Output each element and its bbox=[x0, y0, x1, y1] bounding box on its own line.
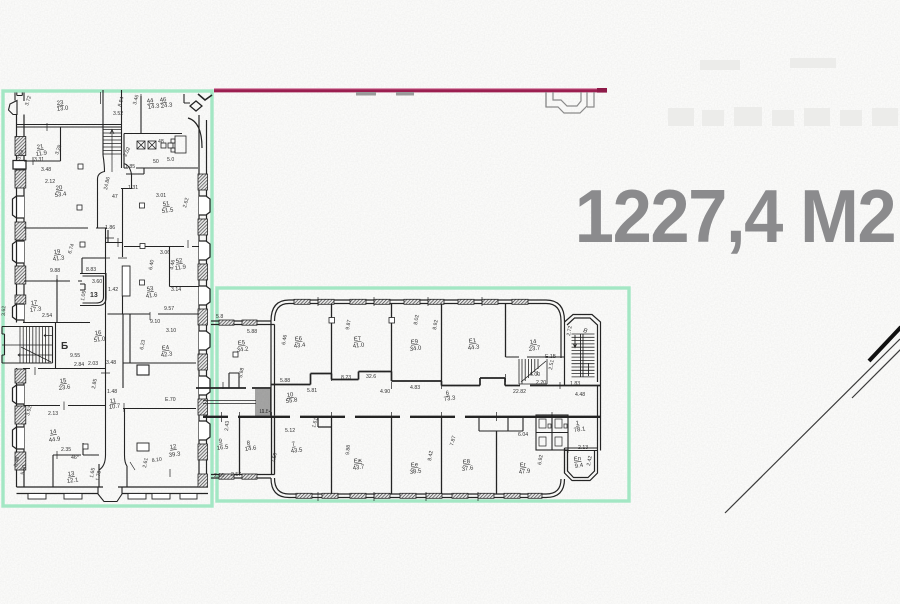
svg-text:6.04: 6.04 bbox=[518, 432, 528, 438]
svg-text:5.0: 5.0 bbox=[167, 157, 174, 163]
svg-text:1.86: 1.86 bbox=[105, 225, 115, 231]
svg-text:Б: Б bbox=[61, 341, 68, 352]
svg-text:46°: 46° bbox=[71, 455, 79, 461]
svg-text:50: 50 bbox=[153, 159, 159, 165]
svg-text:2.13: 2.13 bbox=[48, 411, 58, 417]
svg-text:Е.70: Е.70 bbox=[165, 397, 176, 403]
svg-text:2.16: 2.16 bbox=[214, 473, 224, 479]
svg-text:4.48: 4.48 bbox=[575, 392, 585, 398]
svg-text:5.12: 5.12 bbox=[285, 428, 295, 434]
svg-text:4.83: 4.83 bbox=[410, 385, 420, 391]
svg-text:3.48: 3.48 bbox=[41, 167, 51, 173]
svg-text:2.43: 2.43 bbox=[224, 420, 231, 431]
svg-text:1.42: 1.42 bbox=[108, 287, 118, 293]
svg-text:2.03: 2.03 bbox=[88, 361, 98, 367]
svg-text:2.54: 2.54 bbox=[42, 313, 52, 319]
svg-text:9.55: 9.55 bbox=[70, 353, 80, 359]
svg-text:2.57: 2.57 bbox=[231, 472, 241, 478]
svg-text:48: 48 bbox=[158, 139, 164, 145]
svg-text:8.23: 8.23 bbox=[341, 375, 351, 381]
svg-text:8.83: 8.83 bbox=[86, 267, 96, 273]
svg-text:3.52: 3.52 bbox=[113, 111, 123, 117]
svg-text:9.4: 9.4 bbox=[574, 463, 584, 470]
svg-text:9.57: 9.57 bbox=[164, 306, 174, 312]
svg-text:13: 13 bbox=[90, 292, 98, 299]
svg-text:3.10: 3.10 bbox=[166, 328, 176, 334]
svg-text:4.90: 4.90 bbox=[380, 389, 390, 395]
svg-text:11.84: 11.84 bbox=[259, 409, 272, 415]
svg-text:1.48: 1.48 bbox=[107, 389, 117, 395]
svg-text:1.31: 1.31 bbox=[128, 185, 138, 191]
svg-text:2.84: 2.84 bbox=[74, 362, 84, 368]
svg-text:2.13: 2.13 bbox=[578, 445, 588, 451]
svg-text:1.83: 1.83 bbox=[570, 381, 580, 387]
svg-text:1227,4 М2: 1227,4 М2 bbox=[575, 175, 895, 258]
svg-text:Е.1Б: Е.1Б bbox=[545, 354, 557, 360]
svg-text:3.31: 3.31 bbox=[34, 157, 44, 163]
svg-text:Еп: Еп bbox=[573, 456, 581, 463]
svg-text:32.6: 32.6 bbox=[366, 374, 376, 380]
svg-text:2.12: 2.12 bbox=[45, 179, 55, 185]
svg-text:3.48: 3.48 bbox=[106, 360, 116, 366]
svg-text:1: 1 bbox=[536, 371, 539, 377]
svg-text:3.60: 3.60 bbox=[92, 279, 102, 285]
svg-text:1.85: 1.85 bbox=[125, 164, 135, 170]
svg-text:9.10: 9.10 bbox=[150, 319, 160, 325]
svg-text:5.81: 5.81 bbox=[307, 388, 317, 394]
svg-text:2.20: 2.20 bbox=[536, 380, 546, 386]
svg-text:47: 47 bbox=[112, 194, 118, 200]
svg-text:3.62: 3.62 bbox=[1, 306, 7, 316]
svg-text:5.88: 5.88 bbox=[247, 329, 257, 335]
svg-text:3.06: 3.06 bbox=[160, 250, 170, 256]
svg-text:9.88: 9.88 bbox=[50, 268, 60, 274]
svg-text:3.01: 3.01 bbox=[156, 193, 166, 199]
svg-text:9.88: 9.88 bbox=[345, 444, 352, 455]
svg-text:22.82: 22.82 bbox=[513, 389, 526, 395]
svg-text:5.88: 5.88 bbox=[280, 378, 290, 384]
svg-text:5.8: 5.8 bbox=[216, 314, 223, 320]
svg-text:3.14: 3.14 bbox=[171, 287, 181, 293]
svg-text:2.35: 2.35 bbox=[61, 447, 71, 453]
